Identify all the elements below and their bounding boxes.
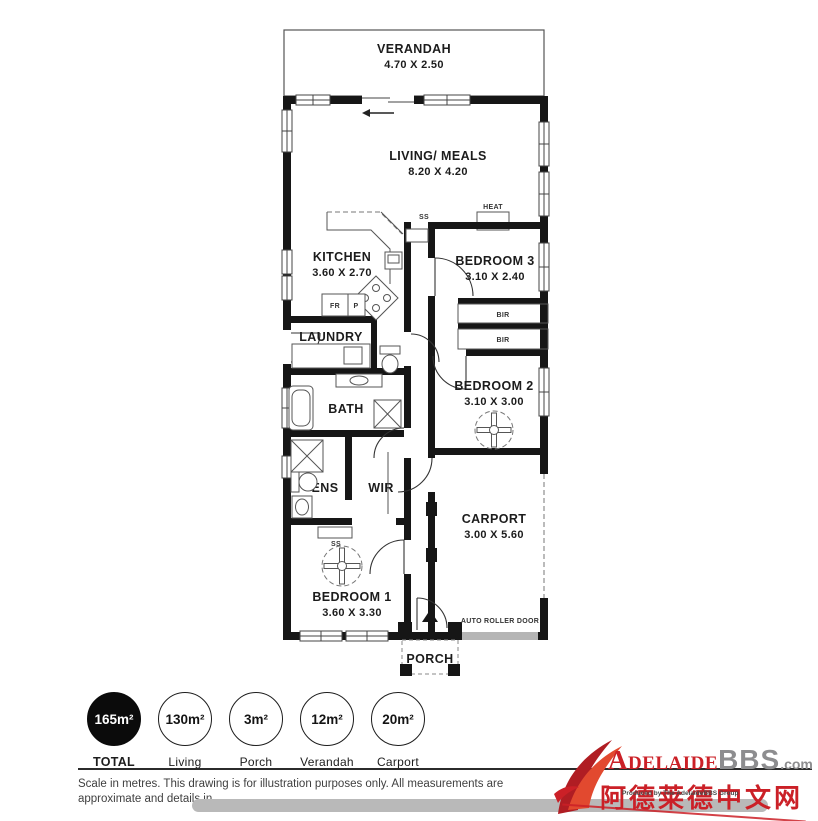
ceiling-fan-bedroom1: [322, 546, 362, 586]
laundry-label: LAUNDRY: [299, 330, 363, 344]
verandah-label: VERANDAH: [377, 42, 451, 56]
kitchen-label: KITCHEN: [313, 250, 371, 264]
bir-label-1: BIR: [497, 312, 510, 319]
bedroom1-dims: 3.60 X 3.30: [322, 607, 382, 619]
legend-item-living: 130m² Living: [157, 692, 213, 769]
bir-label-2: BIR: [497, 337, 510, 344]
ceiling-fan-bedroom2: [475, 411, 513, 449]
wc-toilet: [380, 346, 400, 373]
split-system-label-2: SS: [331, 541, 341, 548]
verandah-area-label: Verandah: [300, 755, 354, 769]
verandah-dims: 4.70 X 2.50: [384, 59, 444, 71]
ens-fixtures: [291, 440, 323, 518]
bedroom3-label: BEDROOM 3: [455, 254, 534, 268]
carport-area-badge: 20m²: [371, 692, 425, 746]
bedroom2-dims: 3.10 X 3.00: [464, 396, 524, 408]
brand-wordmark: AdelaideBBS.com: [608, 744, 813, 776]
adelaidebbs-watermark: AdelaideBBS.com 阿德莱德中文网 Produced by The …: [552, 732, 818, 821]
legend-item-verandah: 12m² Verandah: [299, 692, 355, 769]
fridge-label: FR: [330, 303, 340, 310]
split-system-label-1: SS: [419, 214, 429, 221]
porch-area-badge: 3m²: [229, 692, 283, 746]
legend-item-carport: 20m² Carport: [370, 692, 426, 769]
legend-item-porch: 3m² Porch: [228, 692, 284, 769]
bedroom3-dims: 3.10 X 2.40: [465, 271, 525, 283]
total-area-label: TOTAL: [93, 755, 135, 769]
entry-arrow: [422, 610, 438, 622]
carport-dims: 3.00 X 5.60: [464, 529, 524, 541]
brand-tld: .com: [780, 756, 813, 772]
auto-roller-door-label: AUTO ROLLER DOOR: [461, 618, 539, 625]
porch-label: PORCH: [406, 652, 453, 666]
carport-label: CARPORT: [462, 512, 527, 526]
brand-tagline: Produced by The AdelaideBBS Group: [622, 790, 738, 797]
bedroom1-label: BEDROOM 1: [312, 590, 391, 604]
legend-item-total: 165m² TOTAL: [86, 692, 142, 769]
verandah-area-badge: 12m²: [300, 692, 354, 746]
living-area-label: Living: [168, 755, 201, 769]
floorplan-page: VERANDAH 4.70 X 2.50: [0, 0, 818, 821]
ens-toilet: [299, 473, 317, 491]
ens-toilet-tank: [291, 472, 299, 492]
living-dims: 8.20 X 4.20: [408, 166, 468, 178]
porch-area-label: Porch: [240, 755, 273, 769]
carport-area-label: Carport: [377, 755, 419, 769]
heat-label: HEAT: [483, 204, 503, 211]
disclaimer-line1: Scale in metres. This drawing is for ill…: [78, 777, 503, 792]
bath-label: BATH: [328, 402, 363, 416]
living-area-badge: 130m²: [158, 692, 212, 746]
kitchen-dims: 3.60 X 2.70: [312, 267, 372, 279]
split-system-unit-2: [318, 527, 352, 538]
laundry-fixtures: [292, 344, 370, 368]
sliding-door: [362, 95, 414, 117]
bedroom2-label: BEDROOM 2: [454, 379, 533, 393]
brand-bbs: BBS: [718, 744, 780, 775]
total-area-badge: 165m²: [87, 692, 141, 746]
roller-door: [462, 632, 538, 640]
pantry-label: P: [354, 303, 359, 310]
living-label: LIVING/ MEALS: [389, 149, 487, 163]
area-legend: 165m² TOTAL 130m² Living 3m² Porch 12m² …: [86, 692, 426, 769]
brand-adelaide: Adelaide: [608, 745, 718, 775]
wir-label: WIR: [368, 481, 394, 495]
split-system-unit-1: [406, 229, 428, 242]
floor-plan-drawing: VERANDAH 4.70 X 2.50: [0, 0, 818, 690]
bathtub: [289, 386, 313, 430]
